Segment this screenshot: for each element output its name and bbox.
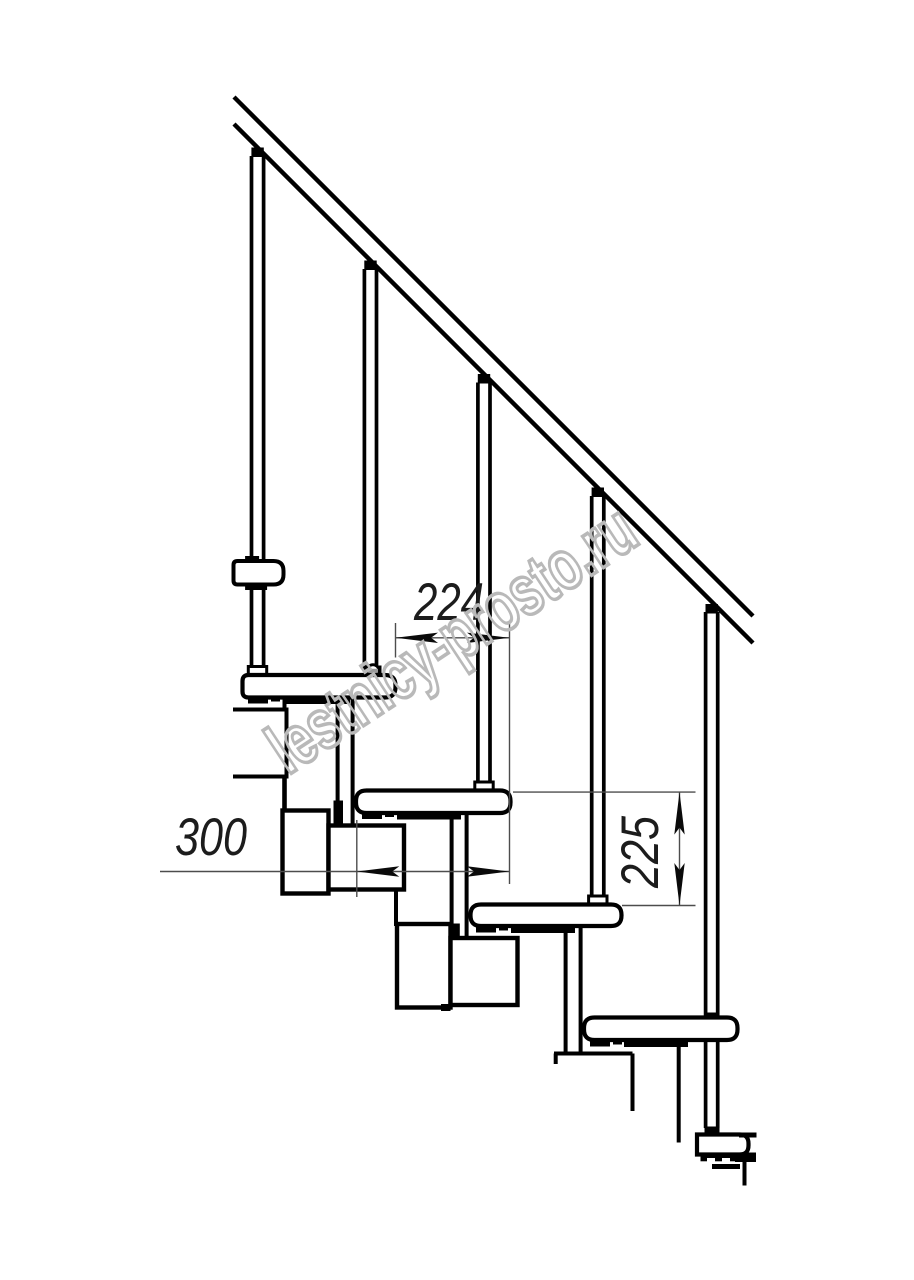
svg-text:225: 225 [611, 816, 670, 889]
svg-text:300: 300 [175, 808, 247, 867]
